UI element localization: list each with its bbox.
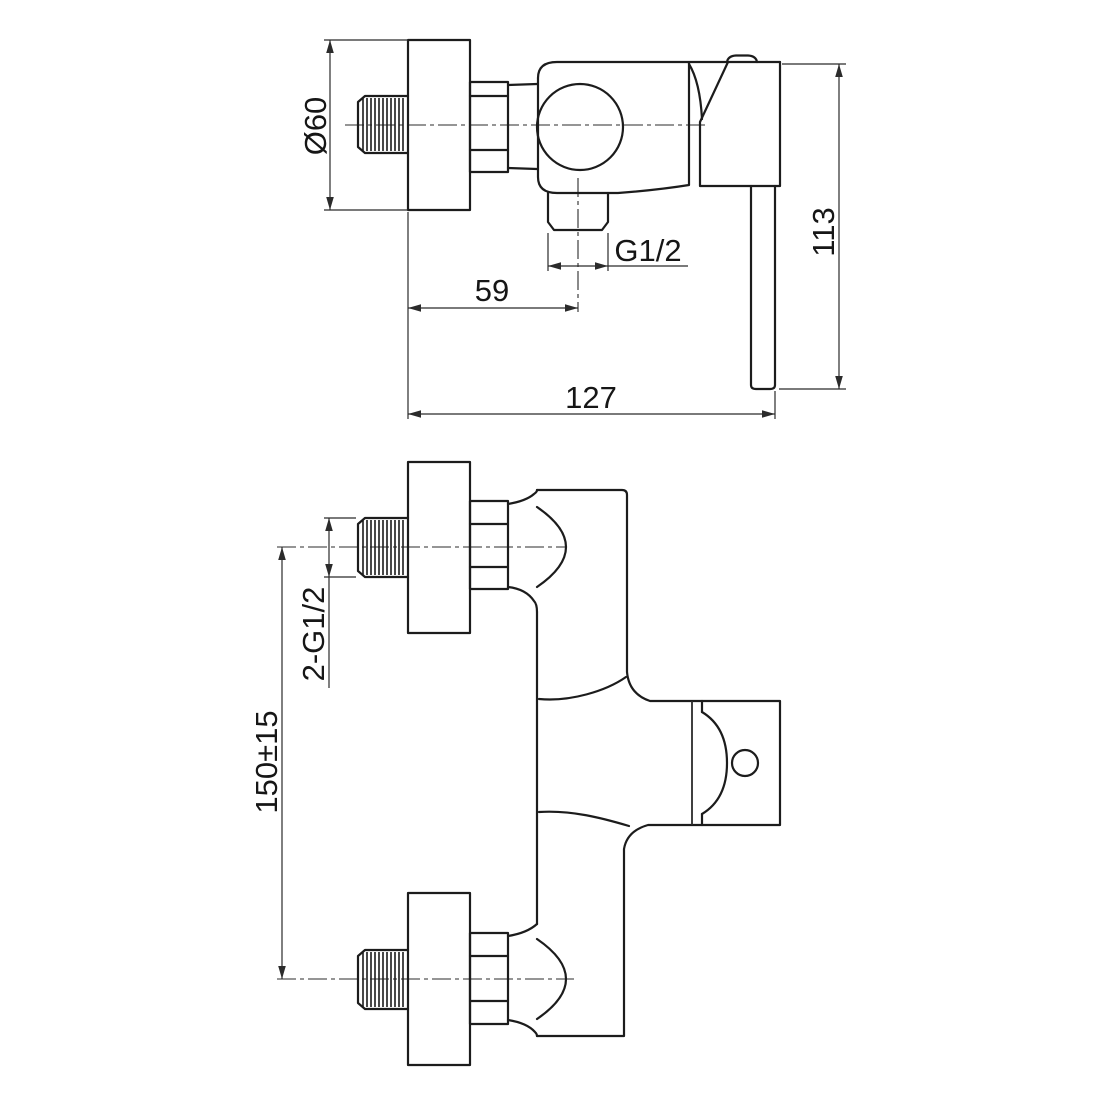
technical-drawing: Ø60 G1/2 59 127 113 xyxy=(0,0,1100,1100)
upper-hex-nut xyxy=(470,501,508,589)
dim-label-outlet-offset: 59 xyxy=(475,273,509,308)
handle-dome-arc xyxy=(702,712,727,814)
lower-waist-curve xyxy=(539,812,629,826)
dim-label-overall-height: 113 xyxy=(806,207,841,256)
body-outline xyxy=(538,63,689,193)
dim-label-inlet-spacing: 150±15 xyxy=(249,710,284,813)
dimension-outlet-thread: G1/2 xyxy=(548,233,688,271)
dim-label-inlet-threads: 2-G1/2 xyxy=(296,587,331,682)
front-view: 2-G1/2 150±15 xyxy=(249,462,780,1065)
dim-label-flange-diameter: Ø60 xyxy=(298,97,333,156)
body-top-edge xyxy=(538,62,780,78)
dimension-inlet-spacing: 150±15 xyxy=(249,547,286,979)
handle-base xyxy=(700,62,780,186)
handle-end-circle xyxy=(732,750,758,776)
dimension-overall-height: 113 xyxy=(779,64,846,389)
drawing-page: Ø60 G1/2 59 127 113 xyxy=(0,0,1100,1100)
dimension-outlet-offset: 59 xyxy=(408,212,578,419)
neck xyxy=(508,84,537,169)
dim-label-outlet-thread: G1/2 xyxy=(614,233,681,268)
upper-trumpet xyxy=(508,490,537,612)
dim-label-overall-width: 127 xyxy=(565,380,617,415)
dimension-inlet-threads: 2-G1/2 xyxy=(296,518,356,688)
front-body-outline xyxy=(537,490,780,1036)
upper-hex-nut-facets xyxy=(470,524,508,567)
side-view: Ø60 G1/2 59 127 113 xyxy=(298,40,846,419)
cartridge-dome-edge xyxy=(689,64,702,119)
body-boss-circle xyxy=(537,84,623,170)
handle-lever xyxy=(751,186,775,389)
hex-nut-facets xyxy=(470,96,508,150)
dimension-overall-width: 127 xyxy=(408,380,775,419)
upper-waist-curve xyxy=(539,677,626,699)
lower-trumpet xyxy=(508,924,537,1036)
